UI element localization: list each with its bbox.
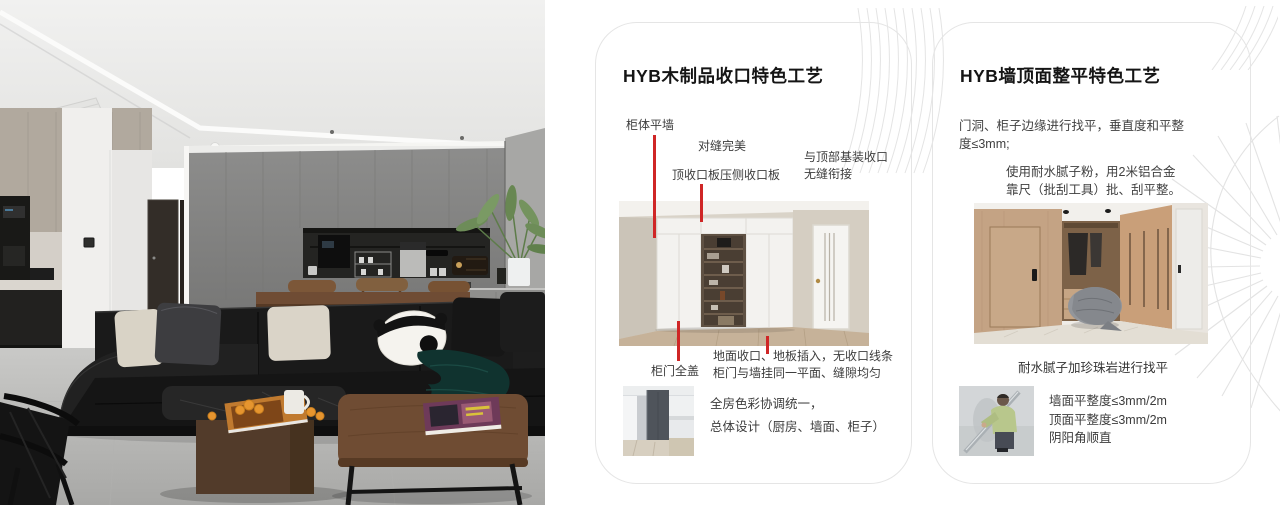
card2-title: HYB墙顶面整平特色工艺 <box>960 63 1160 88</box>
card-wall-ceiling-leveling-craft: HYB墙顶面整平特色工艺 门洞、柜子边缘进行找平，垂直度和平整 度≤3mm; 使… <box>932 22 1251 484</box>
interior-thumbnail-photo <box>623 386 694 456</box>
leveling-paragraph-1: 门洞、柜子边缘进行找平，垂直度和平整 度≤3mm; <box>959 118 1229 153</box>
annotation-door-full-cover: 柜门全盖 <box>651 363 699 380</box>
cloakroom-photo <box>974 203 1208 344</box>
coffee-machine <box>318 235 350 268</box>
annotation-line <box>677 321 680 361</box>
annotation-line <box>700 184 703 222</box>
annotation-top-board: 顶收口板压侧收口板 <box>672 167 780 184</box>
spec-ceiling: 顶面平整度≤3mm/2m <box>1049 411 1167 430</box>
magazines <box>423 397 501 436</box>
annotation-line <box>653 135 656 238</box>
worker-leveling-photo <box>959 386 1034 456</box>
color-harmony-note: 全房色彩协调统一， 总体设计（厨房、墙面、柜子） <box>710 393 885 439</box>
spec-wall: 墙面平整度≤3mm/2m <box>1049 392 1167 411</box>
coffee-niche <box>303 228 490 278</box>
light-switch <box>84 238 94 247</box>
annotation-floor-join: 地面收口、地板插入，无收口线条 柜门与墙挂同一平面、缝隙均匀 <box>713 348 893 382</box>
leveling-paragraph-2: 使用耐水腻子粉，用2米铝合金 靠尺（批刮工具）批、刮平整。 <box>1006 164 1181 199</box>
card-wood-finish-craft: HYB木制品收口特色工艺 柜体平墙 对缝完美 顶收口板压侧收口板 与顶部基装收口… <box>595 22 912 484</box>
photo-caption: 耐水腻子加珍珠岩进行找平 <box>1018 360 1168 377</box>
interior-door <box>148 200 178 312</box>
spec-corners: 阴阳角顺直 <box>1049 429 1167 448</box>
annotation-seam-perfect: 对缝完美 <box>698 138 746 155</box>
flatness-specs: 墙面平整度≤3mm/2m 顶面平整度≤3mm/2m 阴阳角顺直 <box>1049 392 1167 448</box>
annotation-cabinet-flush: 柜体平墙 <box>626 117 674 134</box>
annotation-line <box>766 336 769 354</box>
wardrobe-render-photo <box>619 201 869 346</box>
living-room-photo <box>0 0 545 505</box>
card1-title: HYB木制品收口特色工艺 <box>623 63 823 88</box>
annotation-ceiling-join: 与顶部基装收口 无缝衔接 <box>804 149 888 183</box>
